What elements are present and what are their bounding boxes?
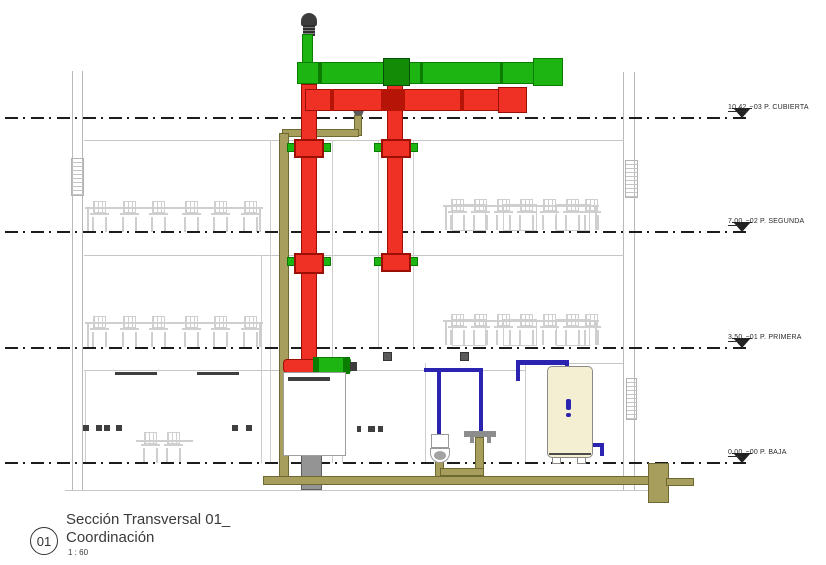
table-leg: [445, 320, 447, 345]
partition-wall: [85, 370, 86, 463]
table-leg: [595, 205, 597, 230]
flange-tab: [410, 257, 418, 266]
exhaust-riser-left: [301, 84, 317, 366]
flange-tab: [323, 257, 331, 266]
riser-coupling: [381, 253, 411, 272]
equipment-cabinet: [283, 372, 346, 456]
heater-foot: [577, 457, 586, 464]
waste-pipe-horizontal: [282, 129, 359, 137]
floor-unit: [246, 425, 252, 431]
level-name: −03 P. CUBIERTA: [750, 104, 809, 111]
foundation-line: [65, 490, 650, 491]
level-label: 3.50−01 P. PRIMERA: [728, 334, 802, 341]
table-top: [85, 207, 263, 209]
chair-leg: [135, 332, 137, 347]
floor-unit: [104, 425, 110, 431]
table-top: [136, 440, 193, 442]
level-name: −01 P. PRIMERA: [745, 334, 801, 341]
water-pipe-heater-run: [516, 360, 569, 365]
heater-gauge-dot: [566, 413, 571, 417]
drain-outlet: [666, 478, 694, 486]
chair-leg: [197, 217, 199, 232]
level-line: [5, 231, 746, 233]
counter-line: [115, 372, 157, 375]
chair-leg: [542, 330, 544, 345]
duct-junction: [383, 58, 410, 86]
duct-coupling: [330, 89, 334, 111]
level-elevation: 0.00: [728, 449, 742, 457]
riser-coupling: [294, 139, 324, 158]
shaft-wall: [270, 140, 271, 463]
level-label: 7.00−02 P. SEGUNDA: [728, 218, 804, 225]
view-title-line1: Sección Transversal 01_: [66, 511, 230, 528]
toilet-bowl-shading: [434, 451, 446, 460]
counter-line: [197, 372, 239, 375]
supply-duct-end-fitting: [533, 58, 563, 86]
wall-insulation-hatch: [625, 160, 638, 198]
shaft-wall: [378, 140, 379, 348]
right-exterior-wall: [623, 72, 635, 491]
chair-leg: [164, 332, 166, 347]
view-title-line2: Coordinación: [66, 529, 154, 546]
vent-stack: [302, 34, 313, 64]
water-pipe-sink-drop: [479, 371, 483, 433]
duct-coupling: [500, 62, 503, 84]
water-pipe-toilet-drop: [437, 371, 441, 435]
chair-leg: [151, 217, 153, 232]
table-box: [556, 319, 590, 346]
sink-bracket: [464, 431, 496, 437]
ceiling-line-mid-floor: [84, 255, 624, 256]
chair-leg: [213, 217, 215, 232]
water-pipe-outlet-drop: [600, 446, 604, 456]
table-top: [85, 322, 263, 324]
chair-leg: [542, 215, 544, 230]
chair-leg: [143, 448, 145, 463]
floor-drain: [383, 352, 392, 361]
table-leg: [87, 322, 89, 347]
chair-leg: [105, 332, 107, 347]
table-leg: [87, 207, 89, 232]
duct-coupling: [318, 62, 322, 84]
view-number: 01: [37, 534, 51, 549]
chair-leg: [122, 217, 124, 232]
chair-leg: [197, 332, 199, 347]
chair-leg: [166, 448, 168, 463]
chair-leg: [486, 330, 488, 345]
floor-unit: [378, 426, 383, 432]
table-box: [452, 319, 486, 346]
floor-unit: [83, 425, 89, 431]
fan-unit-cap: [350, 362, 357, 371]
exhaust-duct-end-fitting: [498, 87, 527, 113]
table-box: [556, 204, 590, 231]
chair-leg: [122, 332, 124, 347]
chair-back: [144, 432, 157, 444]
chair-leg: [597, 215, 599, 230]
chair-leg: [496, 215, 498, 230]
chair-leg: [243, 332, 245, 347]
sink-drain-run: [440, 468, 484, 476]
level-name: −00 P. BAJA: [745, 449, 786, 456]
chair-leg: [213, 332, 215, 347]
level-label: 10.42−03 P. CUBIERTA: [728, 104, 809, 111]
level-elevation: 10.42: [728, 104, 747, 112]
left-exterior-wall: [72, 71, 83, 491]
view-scale: 1 : 60: [68, 548, 88, 557]
toilet-tank: [431, 434, 449, 448]
heater-base-line: [549, 453, 591, 455]
ceiling-line-top-floor: [84, 140, 624, 141]
chair-back: [167, 432, 180, 444]
water-heater: [547, 366, 593, 458]
water-pipe-horizontal: [424, 368, 483, 372]
view-number-bubble: 01: [30, 527, 58, 555]
level-elevation: 7.00: [728, 218, 742, 226]
sink-tap: [487, 437, 491, 443]
chair-leg: [179, 448, 181, 463]
table-box: [452, 204, 486, 231]
table-leg: [259, 322, 261, 347]
chair-leg: [151, 332, 153, 347]
chair-leg: [184, 332, 186, 347]
flange-tab: [323, 143, 331, 152]
exhaust-duct-junction: [381, 89, 405, 111]
floor-unit: [232, 425, 238, 431]
level-line: [5, 347, 746, 349]
floor-unit: [368, 426, 375, 432]
riser-elbow: [283, 359, 315, 373]
heater-gauge-mark: [566, 399, 571, 410]
level-line: [5, 117, 746, 119]
table-box: [503, 319, 537, 346]
riser-coupling: [294, 253, 324, 274]
chair-leg: [486, 215, 488, 230]
section-drawing-canvas: 01 Sección Transversal 01_ Coordinación …: [0, 0, 826, 565]
shaft-wall: [261, 255, 262, 463]
floor-drain: [460, 352, 469, 361]
chair-leg: [92, 217, 94, 232]
sink-tap: [470, 437, 474, 443]
table-box: [503, 204, 537, 231]
chair-leg: [496, 330, 498, 345]
chair-leg: [256, 217, 258, 232]
chair-leg: [164, 217, 166, 232]
floor-unit: [357, 426, 361, 432]
wall-insulation-hatch: [71, 158, 84, 196]
flange-tab: [410, 143, 418, 152]
riser-coupling: [381, 139, 411, 158]
duct-coupling: [420, 62, 423, 84]
chair-leg: [226, 332, 228, 347]
partition-wall: [525, 363, 526, 463]
chair-leg: [135, 217, 137, 232]
water-pipe-elbow: [516, 364, 520, 381]
chair-leg: [243, 217, 245, 232]
chair-leg: [256, 332, 258, 347]
floor-unit: [116, 425, 122, 431]
chair-leg: [105, 217, 107, 232]
level-name: −02 P. SEGUNDA: [745, 218, 804, 225]
level-label: 0.00−00 P. BAJA: [728, 449, 787, 456]
table-leg: [259, 207, 261, 232]
chair-leg: [597, 330, 599, 345]
cabinet-vent-slot: [288, 377, 330, 381]
heater-foot: [552, 457, 561, 464]
partition-wall: [425, 363, 426, 463]
shaft-wall: [413, 140, 414, 348]
duct-coupling: [460, 89, 464, 111]
chair-leg: [156, 448, 158, 463]
level-line: [5, 462, 746, 464]
chair-leg: [226, 217, 228, 232]
level-elevation: 3.50: [728, 334, 742, 342]
main-drain-run: [263, 476, 654, 485]
chair-leg: [184, 217, 186, 232]
table-leg: [595, 320, 597, 345]
wall-insulation-hatch: [626, 378, 637, 420]
chair-leg: [92, 332, 94, 347]
floor-unit: [96, 425, 102, 431]
table-leg: [445, 205, 447, 230]
